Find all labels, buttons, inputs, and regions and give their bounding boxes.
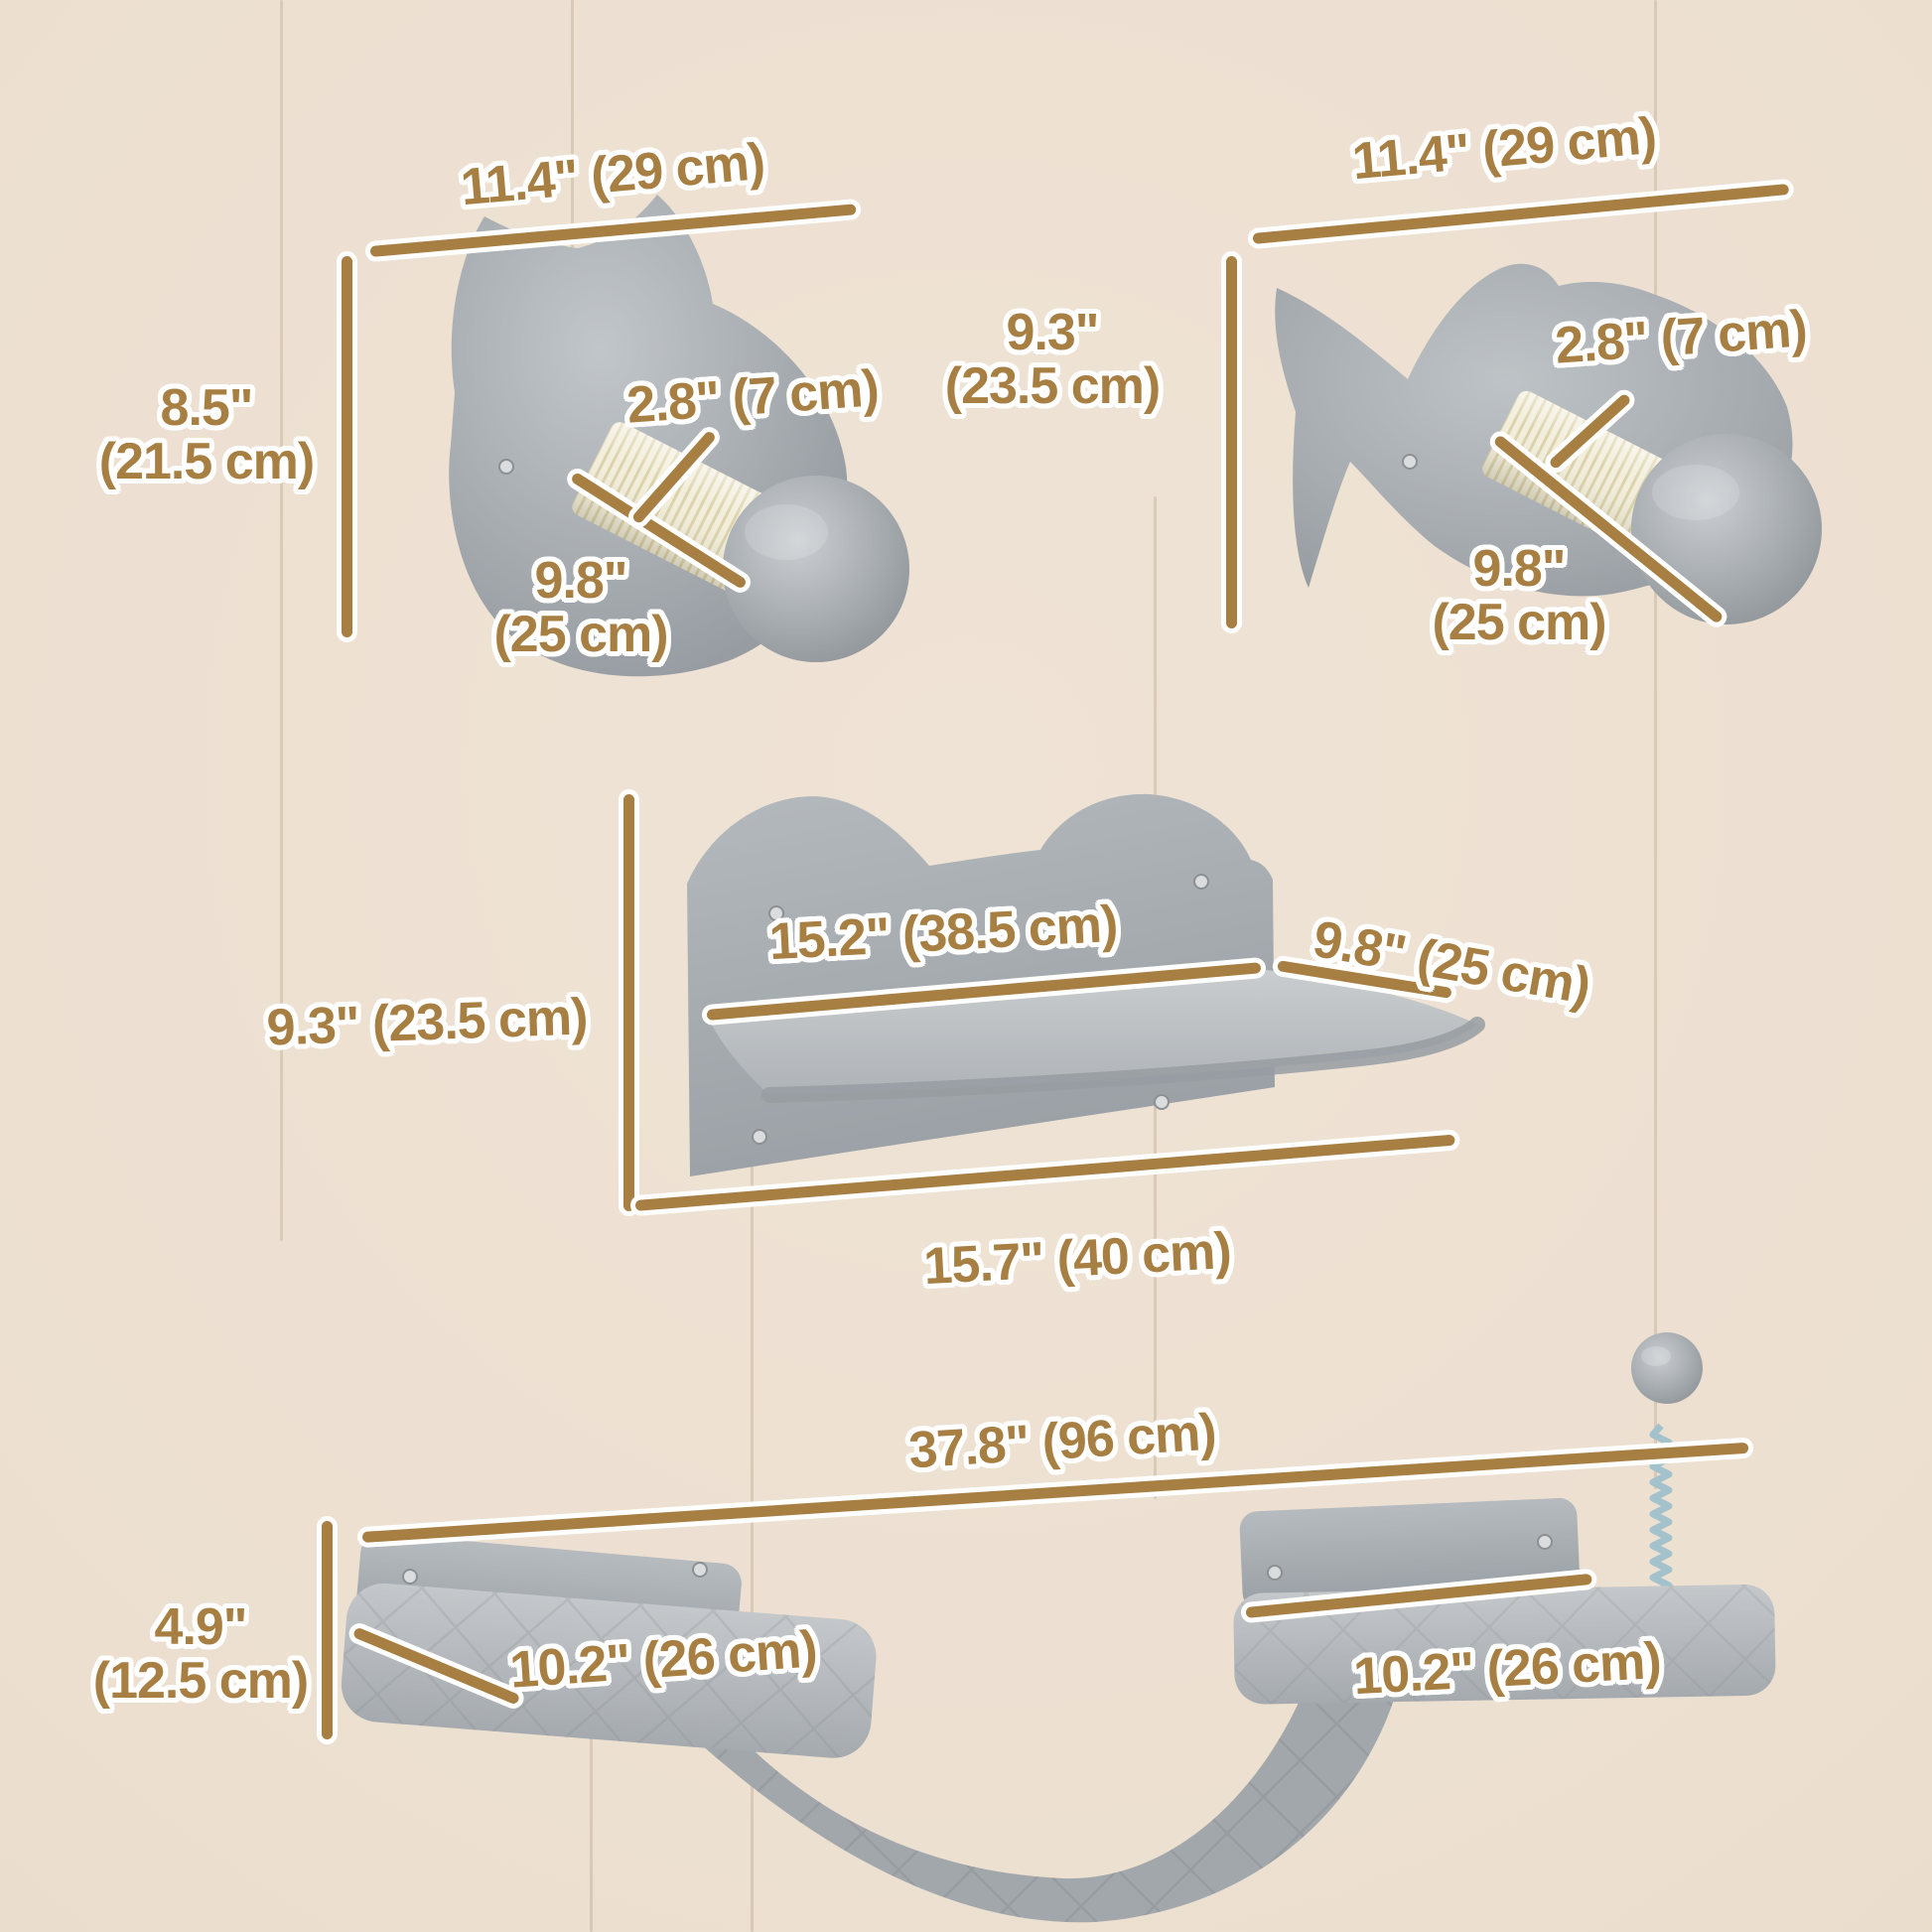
- screw-icon: [753, 1130, 766, 1144]
- dim-line-fish-height: [1226, 256, 1237, 628]
- screw-icon: [1538, 1535, 1552, 1549]
- dim-label-cat-height: 8.5" (21.5 cm): [99, 381, 314, 488]
- dim-line-set-height: [322, 1521, 333, 1739]
- dim-line-shelf-height: [623, 794, 634, 1211]
- wall-seam: [1654, 0, 1657, 1489]
- dim-label-cat-post-length: 9.8" (25 cm): [493, 554, 667, 661]
- pom-ball: [1631, 1332, 1703, 1404]
- dim-line-cat-height: [342, 256, 352, 637]
- shelf-bridge-set-illustration: [278, 1320, 1797, 1932]
- dim-label-fish-width: 11.4" (29 cm): [1350, 109, 1658, 190]
- dim-label-shelf-overall-width: 15.7" (40 cm): [922, 1224, 1232, 1294]
- screw-icon: [1194, 875, 1208, 889]
- dim-label-fish-height: 9.3" (23.5 cm): [945, 306, 1160, 413]
- dim-label-fish-post-length: 9.8" (25 cm): [1432, 542, 1605, 649]
- dim-label-set-height: 4.9" (12.5 cm): [93, 1600, 308, 1708]
- screw-icon: [1268, 1566, 1282, 1580]
- screw-icon: [1155, 1095, 1169, 1109]
- dim-label-shelf-height: 9.3" (23.5 cm): [266, 990, 589, 1054]
- screw-icon: [693, 1563, 707, 1577]
- screw-icon: [1403, 455, 1417, 469]
- product-dimension-diagram: 11.4" (29 cm) 8.5" (21.5 cm) 2.8" (7 cm)…: [0, 0, 1932, 1932]
- screw-icon: [499, 460, 513, 474]
- screw-icon: [403, 1570, 417, 1584]
